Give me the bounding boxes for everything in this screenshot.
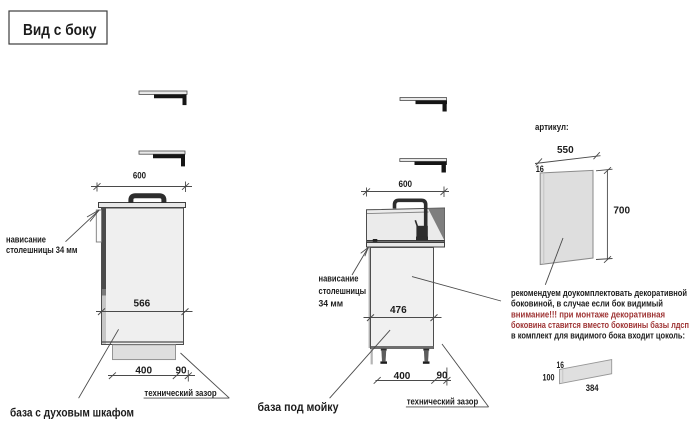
- svg-text:90: 90: [436, 370, 448, 381]
- svg-text:в комплект для видимого бока в: в комплект для видимого бока входит цоко…: [511, 331, 685, 341]
- svg-text:технический зазор: технический зазор: [144, 388, 216, 399]
- svg-text:нависание: нависание: [6, 234, 46, 245]
- svg-text:566: 566: [134, 298, 151, 309]
- svg-text:400: 400: [135, 365, 152, 376]
- svg-text:боковиной, в случае если бок в: боковиной, в случае если бок видимый: [511, 298, 663, 308]
- svg-text:600: 600: [399, 179, 413, 189]
- svg-text:столешницы: столешницы: [319, 286, 367, 297]
- svg-text:476: 476: [390, 305, 407, 316]
- svg-text:700: 700: [613, 206, 630, 217]
- svg-text:боковина ставится вместо боков: боковина ставится вместо боковины базы л…: [511, 320, 689, 330]
- svg-text:Вид с боку: Вид с боку: [23, 22, 97, 39]
- svg-text:90: 90: [175, 365, 187, 376]
- svg-text:база под мойку: база под мойку: [258, 402, 340, 414]
- svg-text:технический зазор: технический зазор: [407, 396, 479, 407]
- svg-text:550: 550: [557, 145, 574, 156]
- svg-text:внимание!!! при монтаже декора: внимание!!! при монтаже декоративная: [511, 309, 665, 319]
- svg-text:384: 384: [586, 383, 599, 393]
- svg-text:16: 16: [536, 164, 544, 174]
- svg-text:столешницы 34 мм: столешницы 34 мм: [6, 245, 77, 256]
- svg-text:600: 600: [133, 171, 146, 181]
- svg-text:рекомендуем доукомплектовать д: рекомендуем доукомплектовать декоративно…: [511, 288, 687, 298]
- svg-text:34 мм: 34 мм: [319, 298, 344, 309]
- svg-text:400: 400: [394, 371, 411, 382]
- svg-text:артикул:: артикул:: [535, 122, 569, 132]
- svg-text:16: 16: [557, 360, 564, 370]
- svg-text:100: 100: [543, 373, 555, 383]
- svg-text:база с духовым шкафом: база с духовым шкафом: [10, 408, 134, 420]
